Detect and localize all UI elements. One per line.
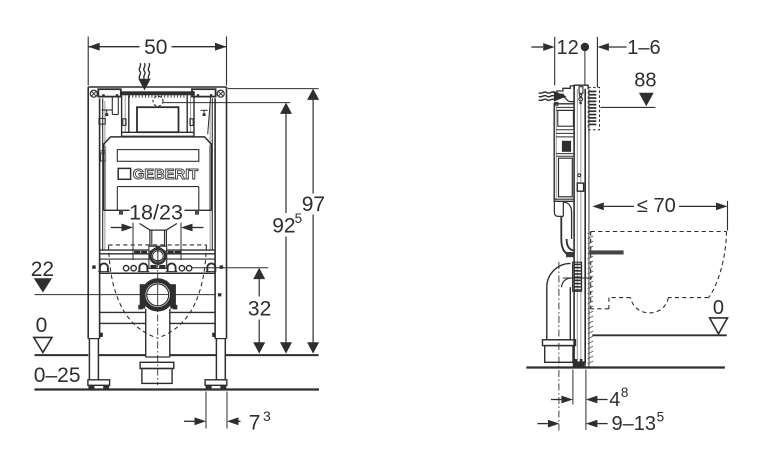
svg-text:92: 92 [272,215,295,238]
svg-text:GEBERIT: GEBERIT [133,166,199,183]
svg-text:8: 8 [621,385,629,400]
svg-text:0: 0 [713,297,724,319]
svg-text:32: 32 [248,298,271,321]
svg-text:97: 97 [302,193,325,216]
svg-text:9–13: 9–13 [612,413,657,435]
svg-text:1–6: 1–6 [627,37,660,59]
svg-text:3: 3 [263,408,271,424]
svg-text:≤ 70: ≤ 70 [637,195,676,217]
svg-text:0–25: 0–25 [34,364,81,387]
svg-text:88: 88 [634,70,656,92]
svg-text:22: 22 [31,258,54,281]
svg-text:7: 7 [249,412,261,435]
svg-text:4: 4 [609,389,620,411]
svg-text:18/23: 18/23 [129,201,183,225]
svg-text:5: 5 [657,409,665,424]
svg-text:0: 0 [36,314,48,337]
svg-text:50: 50 [144,36,167,59]
svg-text:12: 12 [556,37,578,59]
